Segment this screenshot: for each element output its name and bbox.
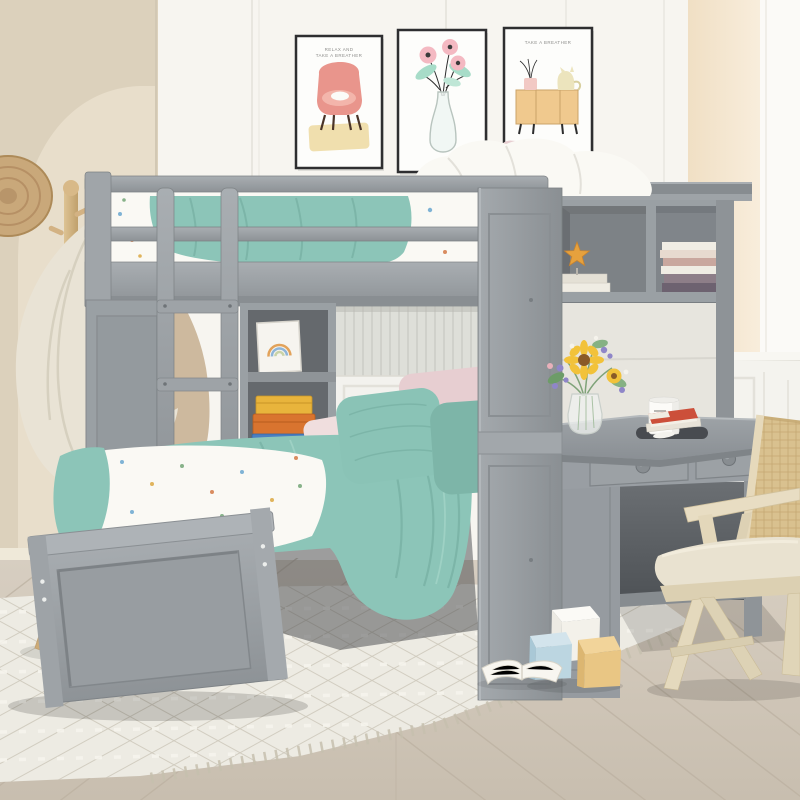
hutch-side-panel (716, 200, 734, 426)
hutch-tower-post (478, 188, 562, 700)
print-dresser (516, 90, 578, 124)
left-end-post (85, 172, 111, 308)
cubby-books-right (660, 242, 718, 292)
rainbow-frame (257, 321, 302, 373)
hutch-bookcase (542, 182, 752, 426)
print-cat (331, 92, 349, 101)
shelf-board-1 (248, 372, 336, 382)
storage-box-yellow (256, 396, 312, 415)
small-sunflower (607, 369, 622, 384)
footboard-panel (57, 551, 250, 687)
glass-vase (568, 394, 602, 434)
tower-mid-rail (478, 432, 562, 454)
toy-block-yellow (577, 636, 621, 688)
print-caption: RELAX AND (325, 47, 354, 52)
svg-text:TAKE A BREATHER: TAKE A BREATHER (316, 53, 363, 58)
footboard (27, 507, 290, 708)
print-caption: TAKE A BREATHER (525, 40, 572, 45)
scene-canvas: RELAX AND TAKE A BREATHER (0, 0, 800, 800)
armchair-print: RELAX AND TAKE A BREATHER (296, 36, 384, 171)
print-plant-pot (524, 78, 537, 90)
print-armchair (317, 62, 362, 115)
bedroom-scene: RELAX AND TAKE A BREATHER (0, 0, 800, 800)
hutch-shelf-board (546, 292, 730, 303)
